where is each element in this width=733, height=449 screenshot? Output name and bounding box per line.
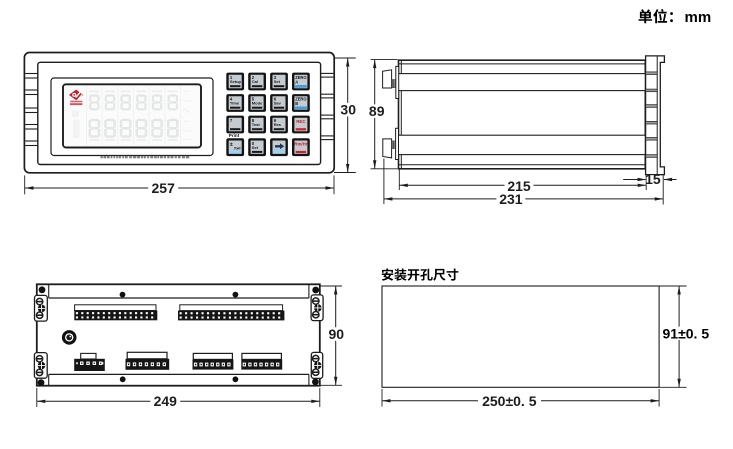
svg-text:249: 249 — [154, 393, 178, 409]
svg-text:Setup: Setup — [230, 79, 242, 84]
svg-text:Test: Test — [252, 122, 261, 127]
svg-text:231: 231 — [499, 191, 523, 207]
svg-text:Sav: Sav — [274, 101, 282, 106]
svg-text:Res: Res — [274, 122, 282, 127]
svg-text:Time: Time — [230, 101, 240, 106]
svg-text:Cal: Cal — [252, 79, 258, 84]
svg-text:Print: Print — [229, 133, 240, 138]
svg-text:Set: Set — [252, 145, 259, 150]
svg-text:REC: REC — [296, 119, 306, 124]
svg-text:257: 257 — [152, 180, 176, 196]
svg-text:91±0. 5: 91±0. 5 — [663, 325, 710, 341]
svg-text:Mode: Mode — [252, 101, 263, 106]
svg-text:mm: mm — [685, 9, 712, 26]
svg-text:A: A — [295, 80, 298, 85]
svg-text:90: 90 — [329, 326, 345, 342]
svg-text:Set: Set — [274, 79, 281, 84]
svg-text:15: 15 — [645, 171, 661, 187]
svg-text:Rm/Hr: Rm/Hr — [294, 142, 307, 147]
svg-text:89: 89 — [369, 103, 385, 119]
svg-text:B: B — [295, 101, 298, 106]
svg-text:30: 30 — [340, 101, 356, 117]
svg-text:±: ± — [230, 142, 233, 148]
svg-text:250±0. 5: 250±0. 5 — [482, 393, 537, 409]
